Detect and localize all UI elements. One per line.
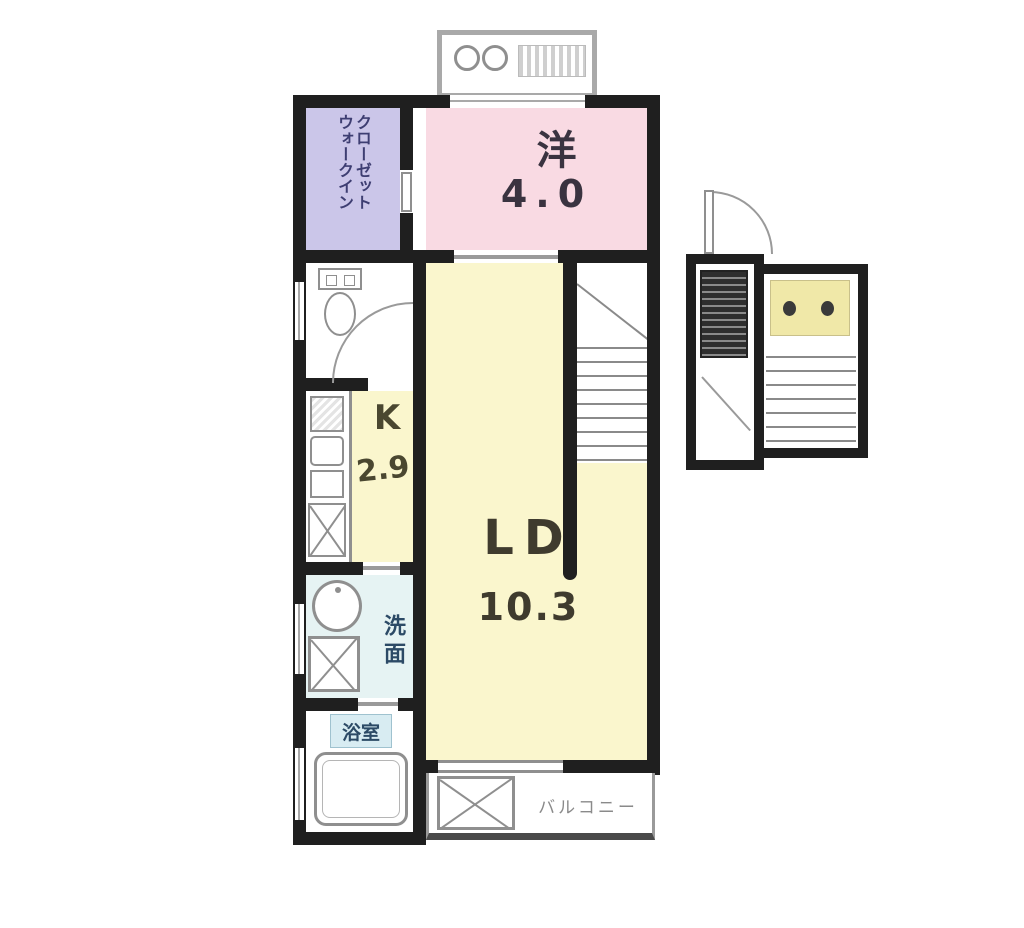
window-line — [298, 604, 300, 674]
landing-dot — [783, 301, 796, 316]
bay-window-ornament-circle — [454, 45, 480, 71]
counter-cabinet — [310, 470, 344, 498]
bay-window — [437, 30, 597, 98]
window-line — [298, 748, 300, 820]
wall-wic-right-lower — [400, 213, 413, 263]
entrance-door-leaf — [704, 190, 714, 254]
toilet-tank-detail — [326, 275, 337, 286]
porch-meter-box — [700, 270, 748, 358]
external-stairs-treads — [766, 344, 856, 446]
washing-machine-icon — [308, 636, 360, 692]
bathroom-label-box: 浴室 — [330, 714, 392, 748]
western-room-size: 4.0 — [436, 172, 657, 216]
external-stairs-block — [754, 264, 868, 458]
wall-wic-right-upper — [400, 95, 413, 170]
window-washroom — [295, 604, 304, 674]
window-bathroom — [295, 748, 304, 820]
floorplan: 洗面 浴室 バルコニー ウォークイン クローゼット 洋 — [0, 0, 1024, 928]
wall-western-bottom-left — [426, 250, 454, 263]
wall-washroom-bottom-left — [293, 698, 358, 711]
kitchen-room-size: 2.9 — [346, 448, 419, 490]
x-mark — [310, 636, 359, 692]
kitchen-room-name: K — [362, 398, 412, 438]
sink-icon — [310, 436, 344, 466]
wall-ld-bottom-left — [426, 760, 438, 773]
x-mark — [439, 776, 515, 830]
washroom-label: 洗面 — [370, 592, 408, 692]
kitchen-counter — [306, 391, 352, 562]
window-line — [298, 282, 300, 340]
window-toilet — [295, 282, 304, 340]
external-stairs-lower-line — [701, 376, 751, 431]
wall-kitchen-bottom-left — [293, 562, 363, 575]
entrance-porch-block — [686, 254, 764, 470]
wic-door — [401, 172, 412, 212]
ld-room-size: 10.3 — [426, 585, 631, 629]
western-room-name: 洋 — [446, 118, 667, 176]
bay-window-ornament-circle — [482, 45, 508, 71]
balcony-washer-space-icon — [437, 776, 515, 830]
faucet-dot — [335, 587, 341, 593]
ld-room-name: LD — [426, 510, 631, 566]
door-swing-arc — [333, 303, 413, 383]
wic-label: ウォークイン クローゼット — [306, 114, 400, 246]
stove-icon — [310, 396, 344, 432]
washbasin-icon — [312, 580, 362, 632]
toilet-tank-detail — [344, 275, 355, 286]
wall-kitchen-bottom-right — [400, 562, 426, 575]
bathroom-label: 浴室 — [342, 718, 380, 745]
bathroom-door — [358, 702, 398, 706]
internal-stairs — [577, 263, 647, 463]
toilet-tank-icon — [318, 268, 362, 290]
stair-landing — [770, 280, 850, 336]
wall-left — [293, 95, 306, 845]
toilet-door-arc — [330, 300, 420, 392]
door-swing-arc — [710, 192, 772, 254]
wall-ld-bottom-right — [563, 760, 660, 773]
window-western-top — [450, 95, 585, 108]
sliding-door-western-ld — [454, 255, 558, 259]
washroom-door — [363, 566, 400, 570]
balcony-label: バルコニー — [523, 793, 653, 818]
wall-bath-bottom — [293, 832, 426, 845]
landing-dot — [821, 301, 834, 316]
wall-washroom-bottom-right — [398, 698, 426, 711]
refrigerator-space-icon — [308, 503, 346, 557]
balcony: バルコニー — [426, 773, 655, 840]
internal-stairs-treads — [577, 335, 647, 463]
wic-label-line1: ウォークイン — [336, 114, 352, 246]
bathtub-inner-line — [322, 760, 400, 818]
window-line — [450, 100, 585, 102]
balcony-window — [438, 760, 563, 773]
bay-window-hatch — [518, 45, 586, 77]
wic-label-line2: クローゼット — [354, 114, 370, 246]
bathtub-icon — [314, 752, 408, 826]
